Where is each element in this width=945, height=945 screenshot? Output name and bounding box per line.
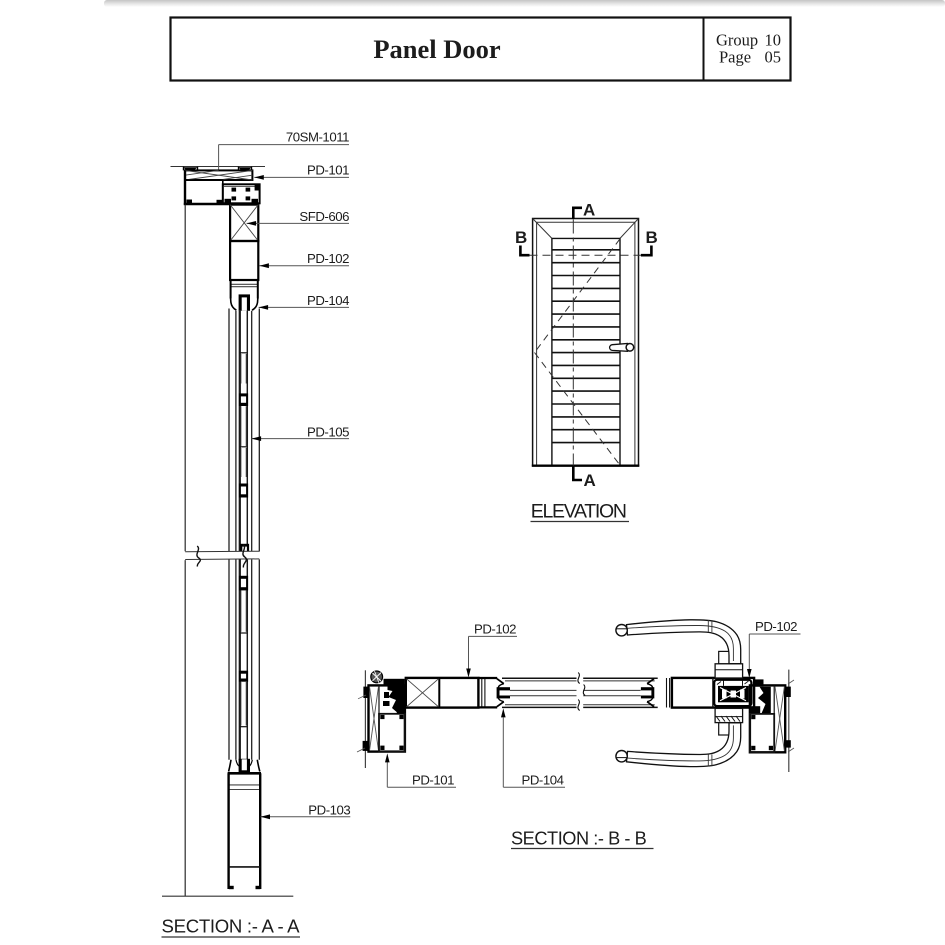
svg-text:Panel Door: Panel Door xyxy=(373,34,501,64)
svg-text:PD-101: PD-101 xyxy=(307,163,349,178)
svg-text:PD-103: PD-103 xyxy=(308,802,350,817)
svg-text:SECTION :- A - A: SECTION :- A - A xyxy=(162,916,301,937)
svg-text:SFD-606: SFD-606 xyxy=(299,209,349,224)
svg-text:SECTION :- B - B: SECTION :- B - B xyxy=(511,829,647,849)
svg-text:PD-102: PD-102 xyxy=(307,251,349,266)
svg-text:PD-104: PD-104 xyxy=(522,773,564,788)
svg-text:B: B xyxy=(646,228,658,247)
svg-text:A: A xyxy=(584,471,596,490)
svg-text:PD-105: PD-105 xyxy=(307,425,349,440)
svg-text:PD-101: PD-101 xyxy=(412,773,454,788)
svg-text:PD-104: PD-104 xyxy=(307,293,349,308)
svg-text:Page: Page xyxy=(719,48,751,67)
svg-text:PD-102: PD-102 xyxy=(755,619,797,634)
svg-text:05: 05 xyxy=(765,48,782,67)
svg-text:PD-102: PD-102 xyxy=(474,622,516,637)
svg-text:B: B xyxy=(515,228,527,247)
svg-text:A: A xyxy=(583,201,595,220)
svg-text:ELEVATION: ELEVATION xyxy=(531,501,626,523)
svg-text:70SM-1011: 70SM-1011 xyxy=(286,129,349,144)
